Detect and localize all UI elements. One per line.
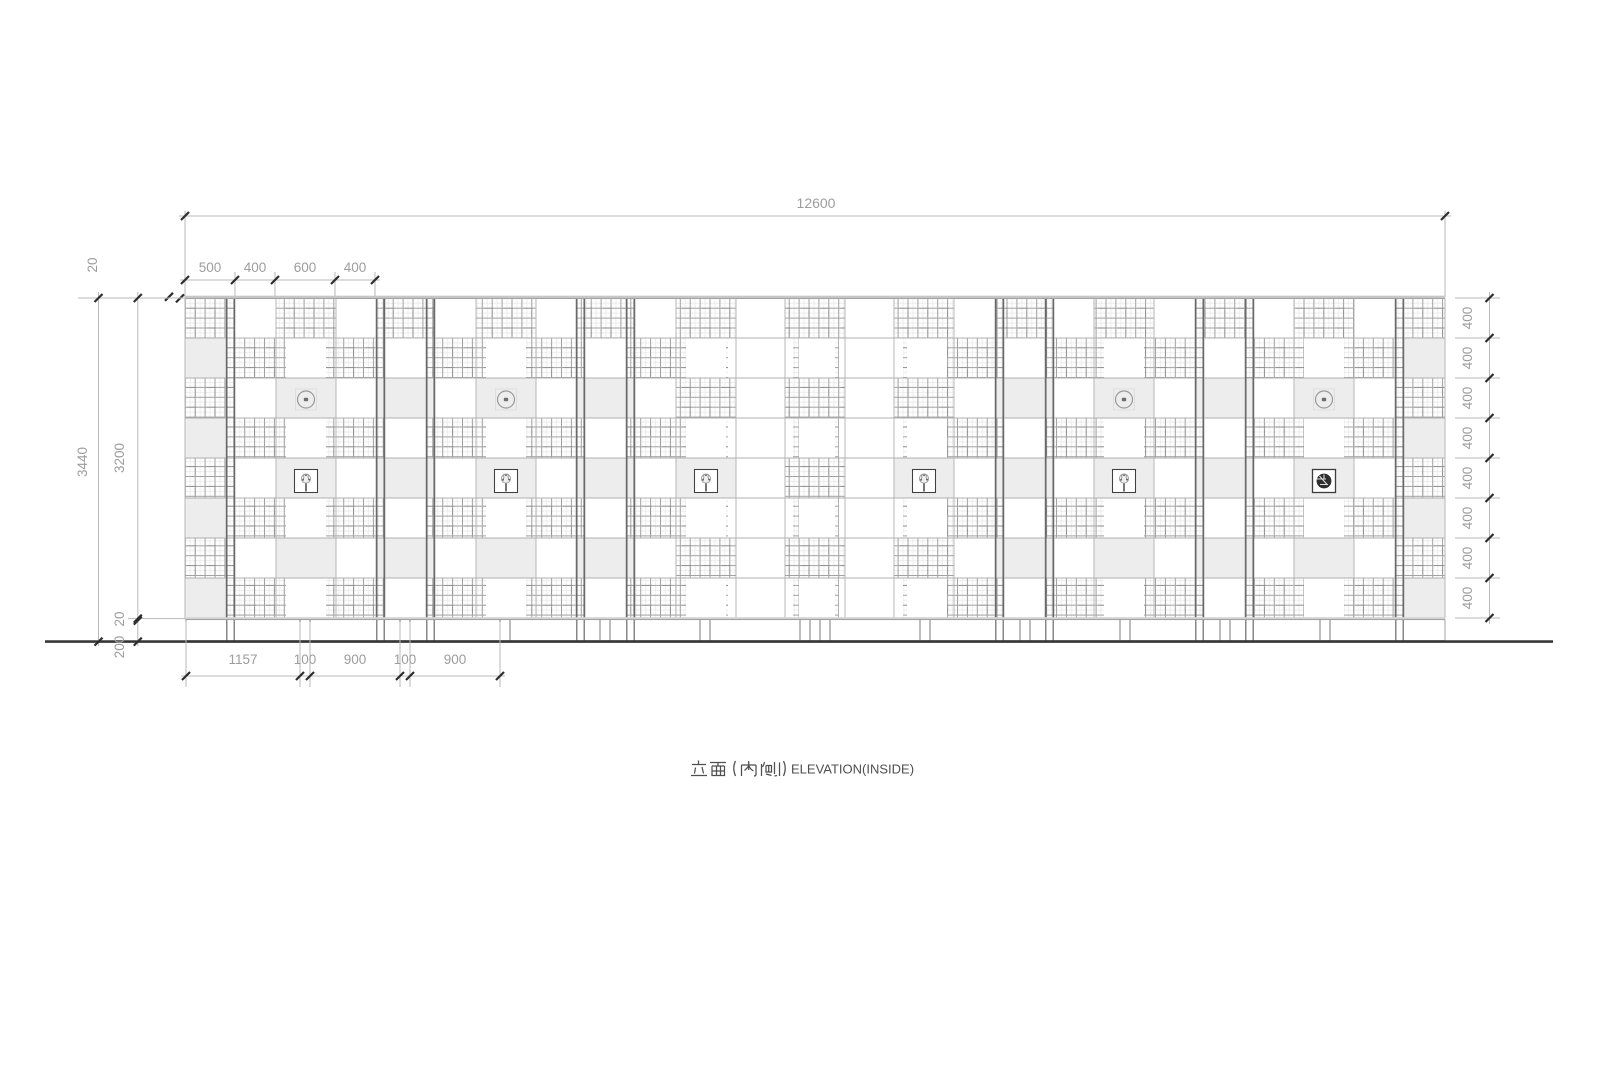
svg-text:400: 400	[244, 260, 267, 275]
svg-text:1157: 1157	[228, 652, 257, 667]
svg-text:500: 500	[199, 260, 222, 275]
svg-text:100: 100	[394, 652, 417, 667]
svg-text:20: 20	[112, 611, 127, 626]
svg-text:400: 400	[344, 260, 367, 275]
svg-text:400: 400	[1460, 507, 1475, 530]
svg-text:400: 400	[1460, 467, 1475, 490]
svg-text:100: 100	[294, 652, 317, 667]
svg-text:400: 400	[1460, 547, 1475, 570]
svg-text:900: 900	[344, 652, 367, 667]
svg-text:3200: 3200	[112, 443, 127, 473]
svg-text:400: 400	[1460, 427, 1475, 450]
svg-text:20: 20	[85, 257, 100, 272]
svg-text:200: 200	[112, 636, 127, 659]
svg-text:400: 400	[1460, 587, 1475, 610]
svg-text:3440: 3440	[75, 447, 90, 477]
svg-text:12600: 12600	[797, 195, 836, 211]
svg-text:600: 600	[294, 260, 317, 275]
svg-text:400: 400	[1460, 347, 1475, 370]
svg-text:900: 900	[444, 652, 467, 667]
svg-text:400: 400	[1460, 307, 1475, 330]
svg-text:400: 400	[1460, 387, 1475, 410]
svg-text:ELEVATION(INSIDE): ELEVATION(INSIDE)	[791, 762, 914, 777]
